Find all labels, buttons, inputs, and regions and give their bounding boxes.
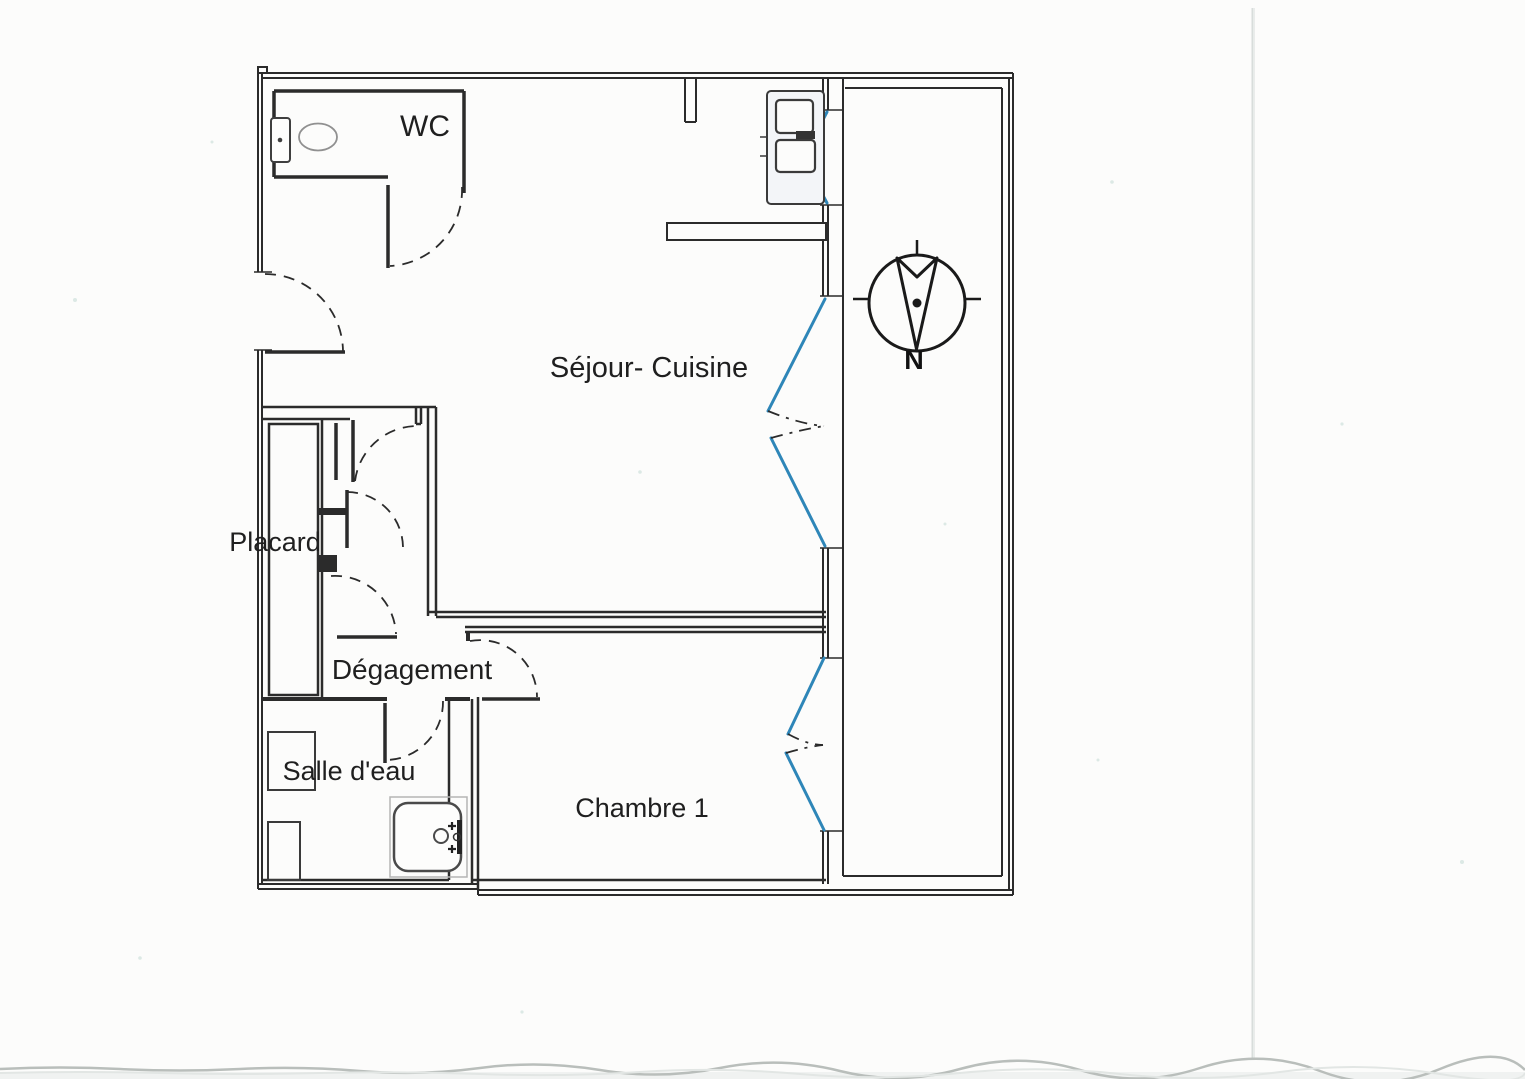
sejour-left-wall <box>428 407 436 616</box>
chambre-left-wall <box>472 697 478 890</box>
sink-faucet <box>796 131 815 139</box>
toilet-fixture <box>271 118 337 162</box>
shower-tray <box>394 803 461 871</box>
sink-basin-top <box>776 100 813 133</box>
room-label-sejour-cuisine: Séjour- Cuisine <box>550 352 748 384</box>
window-glazing-lines <box>768 112 827 830</box>
entry-door-arc <box>265 274 343 351</box>
windows <box>768 112 827 830</box>
toilet-bowl <box>299 124 337 151</box>
room-label-salle-deau: Salle d'eau <box>283 756 416 786</box>
balcony-inner-walls <box>843 88 1002 876</box>
compass: N <box>853 240 981 375</box>
room-label-degagement: Dégagement <box>332 654 493 685</box>
bathroom-duct <box>268 822 300 880</box>
shower-fixture <box>390 797 467 877</box>
sejour-window-lower-leaf <box>771 438 825 546</box>
salle-deau-door-arc <box>387 701 443 760</box>
degagement-door-arc <box>331 576 396 634</box>
wall-top <box>258 73 1013 78</box>
scan-speckles <box>73 141 1464 1014</box>
room-label-placard: Placard <box>229 527 321 557</box>
window-swing-dashes <box>768 411 824 753</box>
chambre-window-upper-leaf <box>788 658 824 734</box>
toilet-button <box>278 138 283 143</box>
room-label-wc: WC <box>400 110 450 143</box>
hall-wall <box>263 407 436 419</box>
scanned-floor-plan-page: N WC Séjour- Cuisine Placard Dégagement … <box>0 0 1525 1079</box>
wc-door-arc <box>390 187 462 266</box>
wall-left <box>258 67 262 889</box>
room-labels: WC Séjour- Cuisine Placard Dégagement Sa… <box>229 110 748 823</box>
sink-basin-bottom <box>776 140 815 172</box>
compass-north-label: N <box>904 345 924 375</box>
placard-box <box>269 424 318 695</box>
entry-door-sills <box>254 272 272 350</box>
sejour-window-upper-leaf <box>768 299 825 411</box>
placard-door-arc-2 <box>347 492 403 547</box>
placard-stub-1 <box>318 508 347 515</box>
top-wall-stub <box>685 78 696 122</box>
kitchen-counter-stub <box>667 223 826 240</box>
chambre-window-lower-leaf <box>786 753 824 830</box>
compass-center-dot <box>913 299 922 308</box>
balcony-walls <box>843 78 1002 876</box>
wall-right <box>1009 73 1013 895</box>
wall-bottom <box>258 884 1013 895</box>
hall-door-jamb <box>416 407 421 424</box>
room-label-chambre-1: Chambre 1 <box>575 793 709 823</box>
placard-door-arc-1 <box>355 426 416 481</box>
kitchen-sink-fixture <box>760 91 824 204</box>
placard-stub-2 <box>318 555 337 572</box>
floor-plan-svg: N WC Séjour- Cuisine Placard Dégagement … <box>0 0 1525 1079</box>
sejour-bottom-wall <box>428 612 826 617</box>
chambre-top-wall <box>465 627 826 632</box>
sink-ticks <box>760 137 767 156</box>
